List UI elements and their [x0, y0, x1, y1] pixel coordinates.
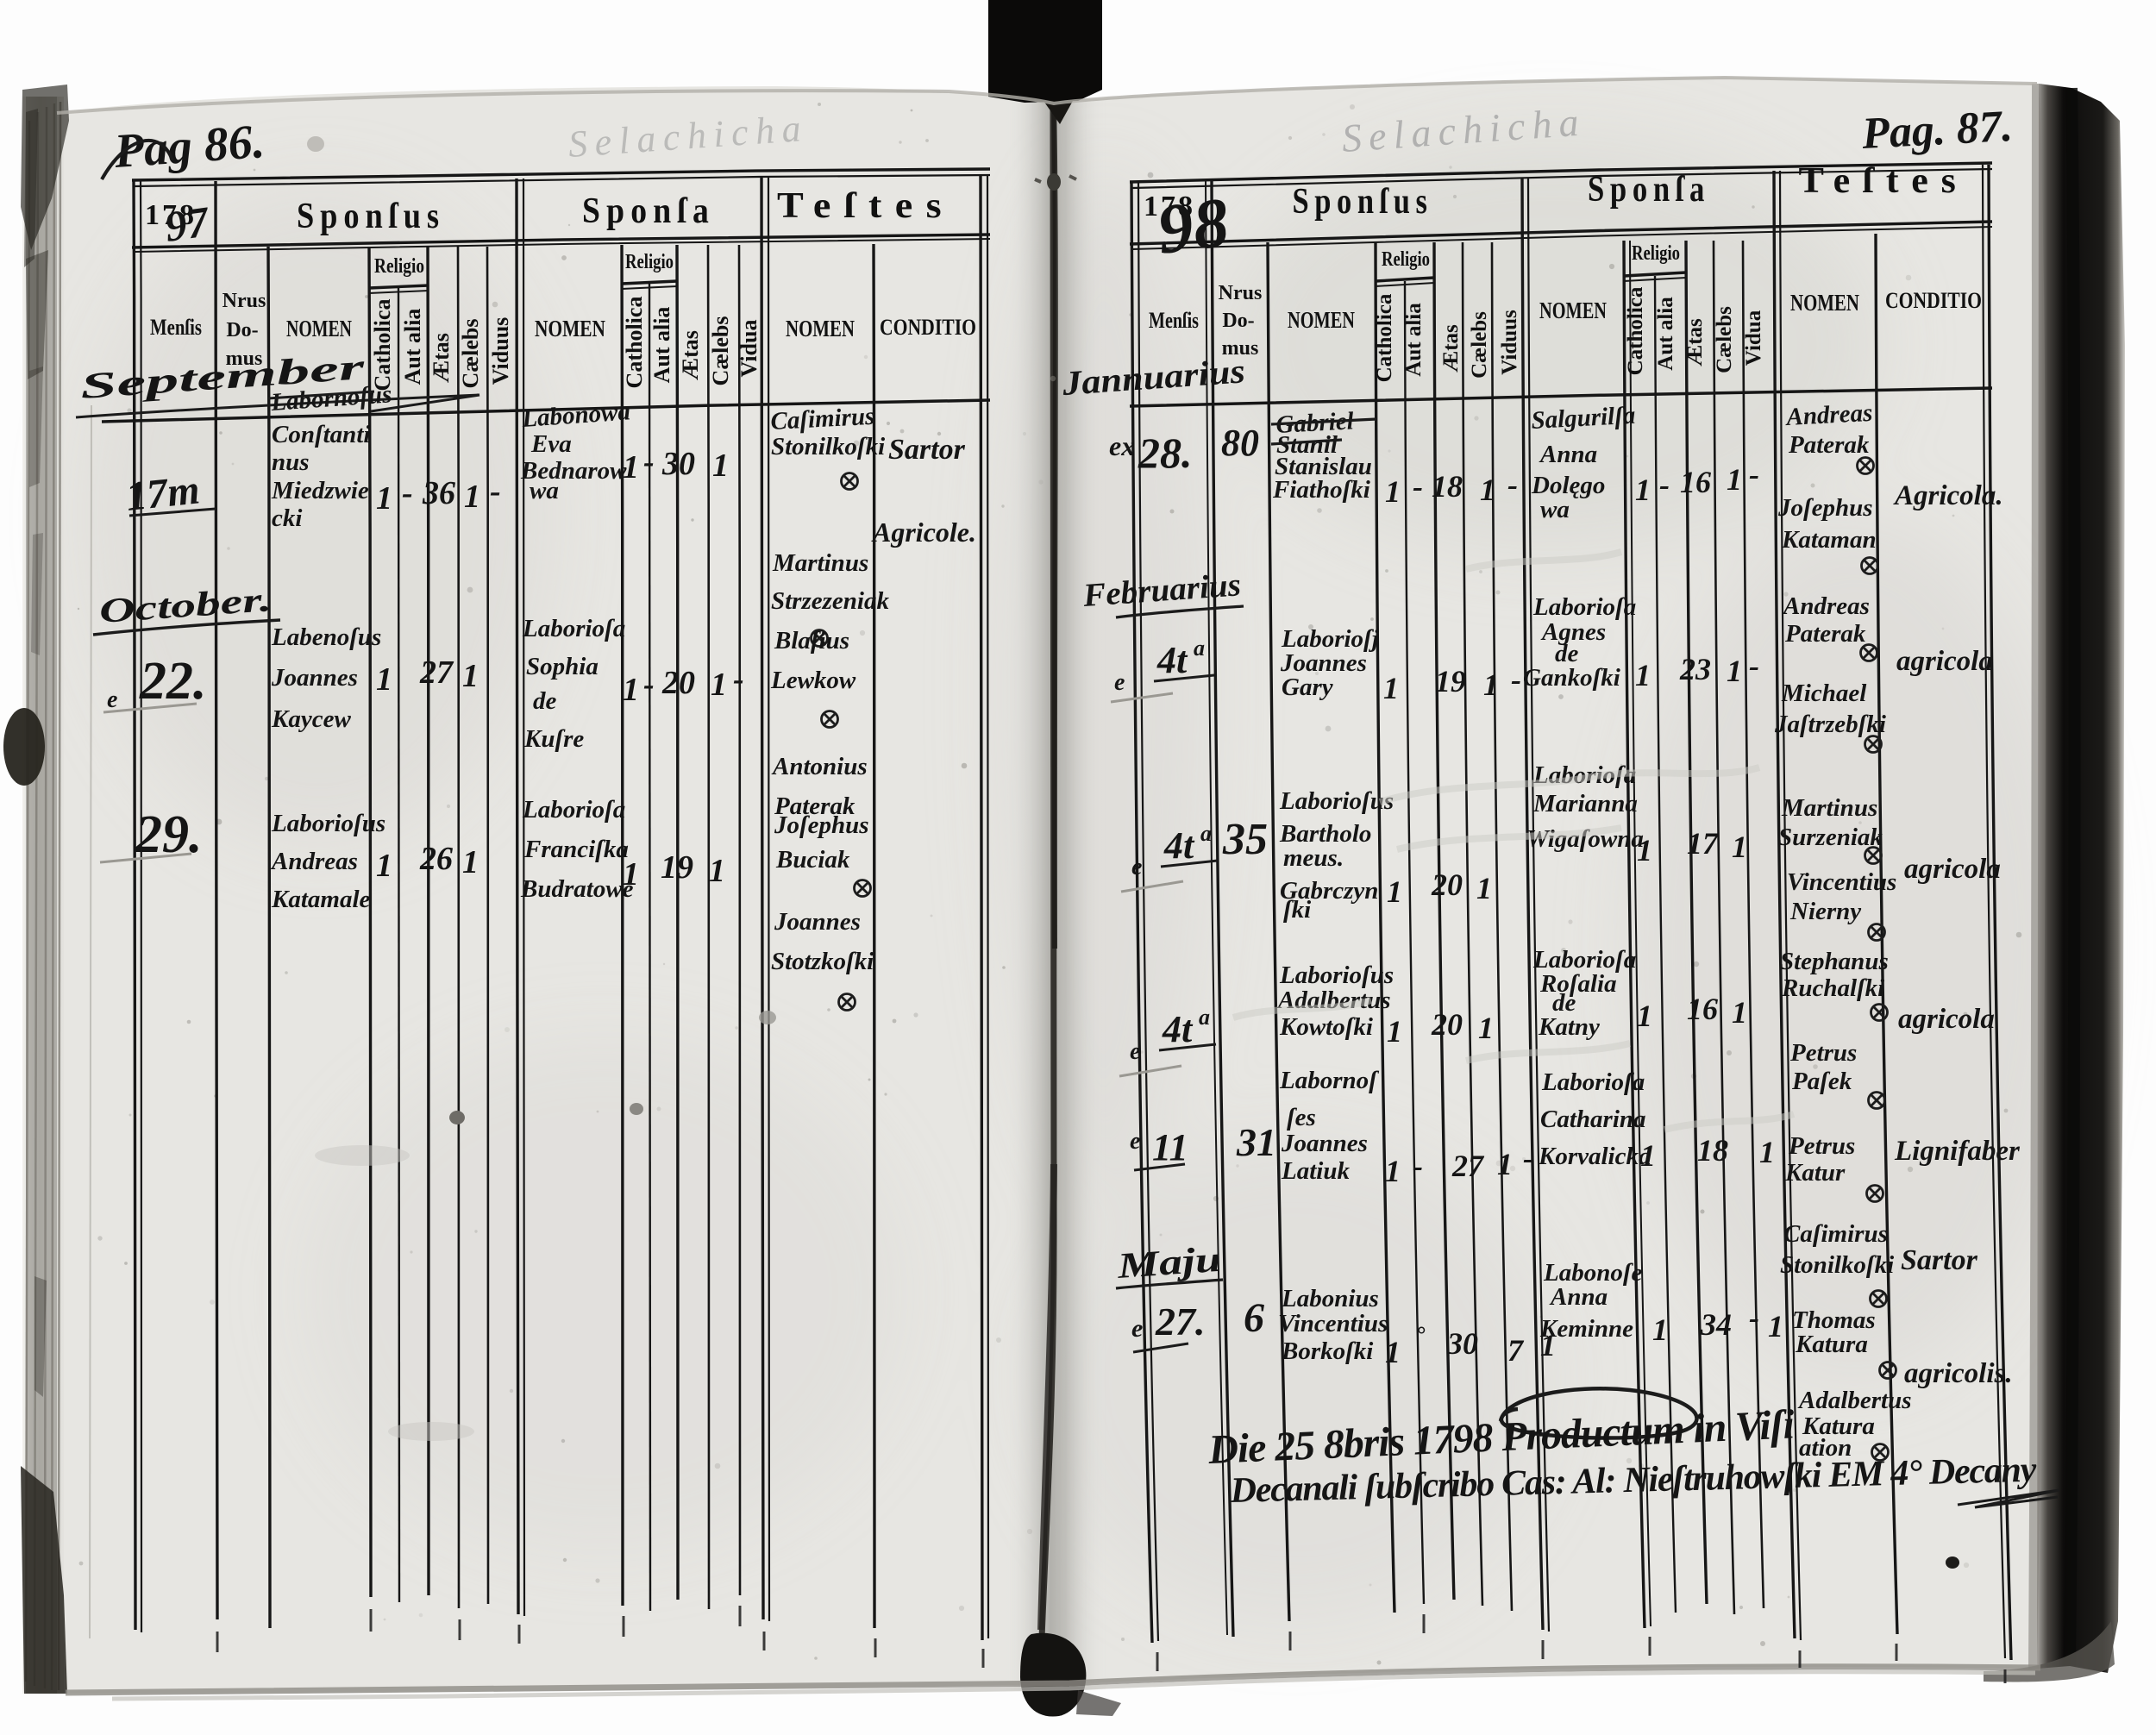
svg-text:NOMEN: NOMEN [286, 316, 352, 341]
svg-text:1: 1 [1385, 1154, 1401, 1188]
svg-text:Sartor: Sartor [1901, 1244, 1978, 1276]
svg-text:-: - [1413, 469, 1423, 504]
svg-text:Adalbertus: Adalbertus [1797, 1387, 1912, 1414]
svg-text:Ætas: Ætas [1439, 324, 1463, 373]
svg-text:4t: 4t [1162, 1008, 1194, 1050]
svg-text:1: 1 [1385, 474, 1401, 509]
svg-text:27: 27 [1451, 1149, 1485, 1183]
svg-text:wa: wa [1540, 496, 1570, 523]
svg-text:-: - [1749, 457, 1759, 492]
svg-text:Paterak: Paterak [1788, 431, 1870, 459]
svg-text:Antonius: Antonius [771, 753, 868, 780]
svg-text:NOMEN: NOMEN [1790, 290, 1859, 316]
svg-text:Cælebs: Cælebs [708, 316, 733, 386]
svg-text:Sponſa: Sponſa [582, 191, 715, 231]
svg-text:-: - [1659, 467, 1670, 502]
svg-text:31: 31 [1236, 1120, 1276, 1164]
svg-text:Eva: Eva [530, 430, 572, 458]
svg-text:Sophia: Sophia [526, 653, 599, 680]
svg-text:Religio: Religio [1382, 248, 1430, 271]
svg-text:22.: 22. [139, 652, 207, 711]
svg-text:Martinus: Martinus [1781, 794, 1877, 822]
svg-text:agricola: agricola [1896, 646, 1993, 677]
svg-text:1: 1 [1637, 999, 1652, 1033]
svg-text:Joannes: Joannes [1281, 1130, 1368, 1157]
svg-text:Aut alia: Aut alia [400, 309, 425, 385]
svg-text:Catholica: Catholica [622, 297, 647, 389]
svg-text:Laborioſa: Laborioſa [1541, 1068, 1645, 1096]
svg-text:1: 1 [711, 667, 727, 703]
svg-text:1: 1 [1635, 658, 1651, 692]
svg-text:Blaſius: Blaſius [774, 627, 849, 655]
svg-text:Katamale: Katamale [271, 886, 371, 913]
svg-text:1: 1 [623, 672, 639, 708]
svg-text:Korvalicka: Korvalicka [1538, 1143, 1651, 1170]
svg-text:Katura: Katura [1795, 1331, 1868, 1358]
svg-text:Nrus: Nrus [1219, 282, 1263, 304]
svg-text:1: 1 [1637, 833, 1652, 867]
svg-text:Caſimirus: Caſimirus [1783, 1220, 1888, 1248]
svg-text:Joannes: Joannes [271, 664, 358, 692]
svg-text:Petrus: Petrus [1789, 1039, 1857, 1067]
svg-text:Marianna: Marianna [1532, 790, 1638, 817]
svg-text:Stotzkoſki: Stotzkoſki [771, 948, 874, 975]
svg-text:Laborioſa: Laborioſa [1532, 593, 1636, 621]
svg-text:NOMEN: NOMEN [535, 316, 605, 341]
svg-text:Religio: Religio [1632, 242, 1680, 265]
svg-text:18: 18 [1697, 1133, 1728, 1168]
svg-text:CONDITIO: CONDITIO [1885, 288, 1982, 313]
svg-text:Ætas: Ætas [1683, 318, 1707, 366]
svg-text:6: 6 [1244, 1295, 1264, 1341]
svg-text:e: e [1131, 1314, 1143, 1343]
svg-text:1: 1 [1497, 1147, 1513, 1181]
svg-text:Stonilkoſki: Stonilkoſki [1780, 1251, 1894, 1279]
svg-text:Andreas: Andreas [270, 848, 358, 875]
svg-text:Salgurilſa: Salgurilſa [1531, 402, 1636, 435]
svg-text:Conſtanti: Conſtanti [272, 421, 370, 448]
svg-text:1: 1 [376, 848, 392, 884]
svg-text:e: e [1114, 669, 1125, 696]
svg-text:-: - [643, 667, 655, 703]
svg-text:Nierny: Nierny [1789, 898, 1861, 925]
svg-text:Borkoſki: Borkoſki [1281, 1337, 1373, 1365]
svg-text:20: 20 [661, 665, 695, 701]
svg-text:Stonilkoſki: Stonilkoſki [771, 433, 885, 460]
svg-text:Andreas: Andreas [1782, 592, 1870, 620]
svg-text:97: 97 [162, 197, 213, 251]
svg-text:1: 1 [1727, 462, 1742, 497]
svg-text:Labenoſus: Labenoſus [271, 623, 381, 651]
svg-text:-: - [733, 661, 744, 698]
svg-text:Agricola.: Agricola. [1893, 480, 2003, 511]
svg-text:Cælebs: Cælebs [1468, 311, 1491, 379]
svg-text:Catholica: Catholica [1624, 286, 1647, 375]
svg-text:Martinus: Martinus [772, 549, 868, 577]
svg-text:Katur: Katur [1784, 1159, 1846, 1187]
svg-text:e: e [1131, 854, 1142, 880]
svg-text:30: 30 [1446, 1326, 1478, 1361]
svg-text:20: 20 [1431, 867, 1463, 902]
svg-text:-: - [490, 473, 501, 510]
svg-text:Agricole.: Agricole. [871, 517, 976, 548]
svg-text:1: 1 [1652, 1312, 1668, 1347]
svg-text:Sponſus: Sponſus [1293, 182, 1433, 222]
svg-text:1: 1 [1732, 995, 1747, 1030]
svg-text:1: 1 [1480, 473, 1495, 507]
svg-text:1: 1 [464, 479, 480, 515]
svg-text:Sartor: Sartor [888, 434, 966, 466]
svg-text:Keminne: Keminne [1539, 1315, 1633, 1343]
svg-text:18: 18 [1432, 469, 1463, 504]
svg-text:Paterak: Paterak [1784, 620, 1866, 648]
svg-text:Catholica: Catholica [370, 299, 395, 391]
svg-text:Teſtes: Teſtes [777, 186, 955, 226]
svg-text:Caſimirus: Caſimirus [770, 403, 875, 435]
svg-text:Laborioſus: Laborioſus [1279, 961, 1394, 989]
svg-text:wa: wa [530, 477, 559, 504]
svg-text:Cælebs: Cælebs [458, 319, 483, 389]
svg-text:Vincentius: Vincentius [1278, 1310, 1388, 1337]
svg-text:Kuſre: Kuſre [523, 725, 584, 753]
svg-text:16: 16 [1687, 992, 1718, 1026]
svg-text:Budratowe: Budratowe [520, 875, 634, 903]
svg-text:19: 19 [661, 849, 693, 886]
svg-text:Vidua: Vidua [1742, 310, 1765, 366]
svg-text:°: ° [1416, 1322, 1426, 1347]
svg-text:Do-: Do- [226, 319, 258, 341]
svg-text:1: 1 [1385, 1335, 1401, 1369]
svg-text:1: 1 [709, 853, 725, 889]
svg-text:Strzezeniak: Strzezeniak [771, 587, 889, 615]
svg-text:Joſephus: Joſephus [774, 811, 869, 839]
svg-text:Labornoſ: Labornoſ [1279, 1067, 1380, 1094]
svg-text:Pag 86.: Pag 86. [112, 115, 266, 179]
svg-text:Menſis: Menſis [1149, 308, 1199, 333]
svg-text:1: 1 [376, 480, 392, 517]
svg-text:1: 1 [1768, 1309, 1783, 1344]
svg-text:Cælebs: Cælebs [1713, 306, 1736, 373]
svg-text:26: 26 [419, 841, 453, 877]
svg-text:Anna: Anna [1539, 441, 1597, 468]
svg-text:-: - [1507, 467, 1518, 502]
svg-text:1: 1 [1476, 871, 1492, 905]
svg-text:Viduus: Viduus [488, 317, 513, 385]
svg-text:Laborioſa: Laborioſa [522, 796, 625, 824]
svg-text:a: a [1200, 821, 1212, 846]
svg-text:Teſtes: Teſtes [1799, 161, 1969, 201]
svg-text:Jaſtrzebſki: Jaſtrzebſki [1774, 711, 1886, 738]
svg-text:1: 1 [462, 658, 479, 694]
svg-text:CONDITIO: CONDITIO [880, 315, 976, 340]
svg-text:1: 1 [1640, 1138, 1656, 1173]
svg-text:1: 1 [623, 856, 639, 893]
svg-text:Labonius: Labonius [1281, 1285, 1379, 1312]
svg-text:1: 1 [1387, 1014, 1402, 1049]
svg-text:Aut alia: Aut alia [1654, 297, 1677, 371]
svg-text:Roſalia: Roſalia [1539, 970, 1617, 998]
svg-text:Pag. 87.: Pag. 87. [1860, 102, 2015, 159]
svg-text:19: 19 [1435, 664, 1466, 698]
svg-text:Anna: Anna [1549, 1283, 1608, 1311]
svg-text:Surzeniak: Surzeniak [1778, 824, 1883, 851]
svg-text:a: a [1199, 1005, 1210, 1030]
svg-text:Buciak: Buciak [775, 846, 850, 874]
svg-text:-: - [643, 444, 655, 480]
svg-text:27: 27 [419, 655, 454, 691]
svg-text:Sponſus: Sponſus [297, 197, 445, 236]
svg-text:a: a [1194, 636, 1205, 661]
svg-text:-: - [1749, 648, 1759, 683]
svg-text:Katny: Katny [1538, 1013, 1600, 1041]
svg-text:Laborioſa: Laborioſa [522, 615, 625, 642]
svg-text:36: 36 [422, 475, 455, 511]
svg-text:agricolis.: agricolis. [1904, 1358, 2013, 1389]
svg-text:Joſephus: Joſephus [1777, 494, 1873, 522]
svg-text:Petrus: Petrus [1788, 1132, 1855, 1160]
svg-text:-: - [1511, 662, 1521, 697]
svg-text:Michael: Michael [1781, 680, 1867, 707]
svg-text:Laborioſus: Laborioſus [271, 810, 385, 837]
svg-text:20: 20 [1431, 1007, 1463, 1042]
svg-text:e: e [1130, 1038, 1140, 1065]
svg-text:1: 1 [376, 661, 392, 698]
svg-text:Nrus: Nrus [222, 290, 266, 312]
svg-text:1: 1 [1727, 654, 1742, 688]
svg-text:Andreas: Andreas [1784, 399, 1873, 431]
svg-text:Kataman: Kataman [1781, 526, 1877, 554]
svg-text:80: 80 [1221, 422, 1259, 464]
svg-text:17: 17 [1687, 826, 1720, 861]
svg-text:agricola: agricola [1898, 1004, 1995, 1035]
svg-text:Sponſa: Sponſa [1588, 170, 1710, 210]
svg-text:28.: 28. [1138, 429, 1193, 477]
svg-text:Franciſka: Franciſka [523, 836, 629, 863]
svg-text:Gankoſki: Gankoſki [1523, 664, 1620, 692]
svg-text:Stephanus: Stephanus [1780, 948, 1889, 975]
svg-text:1: 1 [1478, 1011, 1494, 1045]
svg-text:11: 11 [1152, 1126, 1188, 1168]
svg-text:Gary: Gary [1282, 673, 1333, 701]
svg-text:Ruchalſki: Ruchalſki [1781, 974, 1884, 1002]
svg-text:Joannes: Joannes [774, 908, 861, 936]
svg-text:1: 1 [712, 448, 729, 484]
svg-text:agricola: agricola [1904, 854, 2001, 885]
svg-text:ex: ex [1109, 430, 1135, 461]
svg-text:Do-: Do- [1222, 310, 1254, 332]
svg-text:Lignifaber: Lignifaber [1894, 1136, 2021, 1167]
svg-text:Fiathoſki: Fiathoſki [1272, 476, 1370, 504]
svg-text:23: 23 [1679, 652, 1711, 686]
svg-text:1: 1 [1387, 874, 1402, 909]
svg-text:30: 30 [661, 446, 695, 482]
svg-text:Kaycew: Kaycew [271, 705, 351, 733]
svg-text:Aut alia: Aut alia [649, 307, 674, 384]
svg-text:1: 1 [1383, 671, 1399, 705]
svg-text:cki: cki [272, 504, 302, 532]
svg-text:-: - [1413, 1149, 1423, 1183]
svg-text:Laborioſus: Laborioſus [1279, 787, 1394, 815]
svg-text:1: 1 [1635, 473, 1651, 507]
svg-text:Vidua: Vidua [736, 320, 761, 378]
svg-text:Vincentius: Vincentius [1787, 868, 1896, 896]
svg-text:98: 98 [1153, 183, 1232, 269]
svg-text:27.: 27. [1155, 1300, 1206, 1344]
svg-text:35: 35 [1222, 815, 1268, 864]
svg-text:nus: nus [272, 448, 310, 476]
svg-text:1: 1 [623, 449, 639, 485]
svg-text:Latiuk: Latiuk [1281, 1157, 1350, 1185]
svg-text:Lewkow: Lewkow [770, 667, 856, 694]
svg-text:Miedzwie: Miedzwie [271, 477, 369, 504]
svg-text:ſes: ſes [1287, 1104, 1316, 1131]
svg-text:Paſek: Paſek [1791, 1068, 1852, 1095]
svg-text:e: e [1130, 1128, 1140, 1155]
svg-text:meus.: meus. [1283, 844, 1344, 872]
svg-text:1: 1 [1759, 1135, 1775, 1169]
svg-text:Menſis: Menſis [150, 315, 202, 340]
svg-text:-: - [1749, 1300, 1759, 1335]
svg-text:Catharina: Catharina [1540, 1106, 1646, 1133]
svg-text:-: - [402, 475, 413, 511]
svg-text:Religio: Religio [374, 255, 424, 278]
svg-text:de: de [533, 687, 557, 715]
svg-text:Ætas: Ætas [429, 333, 454, 383]
svg-text:7: 7 [1507, 1333, 1525, 1368]
svg-text:Viduus: Viduus [1498, 310, 1521, 375]
svg-text:Catholica: Catholica [1373, 293, 1396, 382]
svg-text:1: 1 [1483, 667, 1499, 702]
svg-text:4t: 4t [1156, 639, 1188, 681]
svg-text:Religio: Religio [625, 251, 674, 273]
svg-text:NOMEN: NOMEN [786, 316, 855, 341]
svg-text:Aut alia: Aut alia [1402, 303, 1426, 377]
svg-text:1: 1 [462, 844, 479, 880]
svg-text:Ætas: Ætas [678, 330, 703, 380]
svg-text:1: 1 [1732, 830, 1747, 864]
svg-text:16: 16 [1680, 465, 1711, 499]
svg-text:ſki: ſki [1283, 896, 1311, 924]
svg-text:34: 34 [1700, 1307, 1732, 1342]
svg-text:NOMEN: NOMEN [1288, 307, 1355, 333]
svg-text:4t: 4t [1163, 824, 1195, 867]
svg-text:e: e [107, 686, 117, 713]
svg-text:NOMEN: NOMEN [1539, 298, 1607, 323]
svg-text:-: - [1523, 1141, 1533, 1175]
svg-text:Kowtoſki: Kowtoſki [1279, 1013, 1373, 1041]
